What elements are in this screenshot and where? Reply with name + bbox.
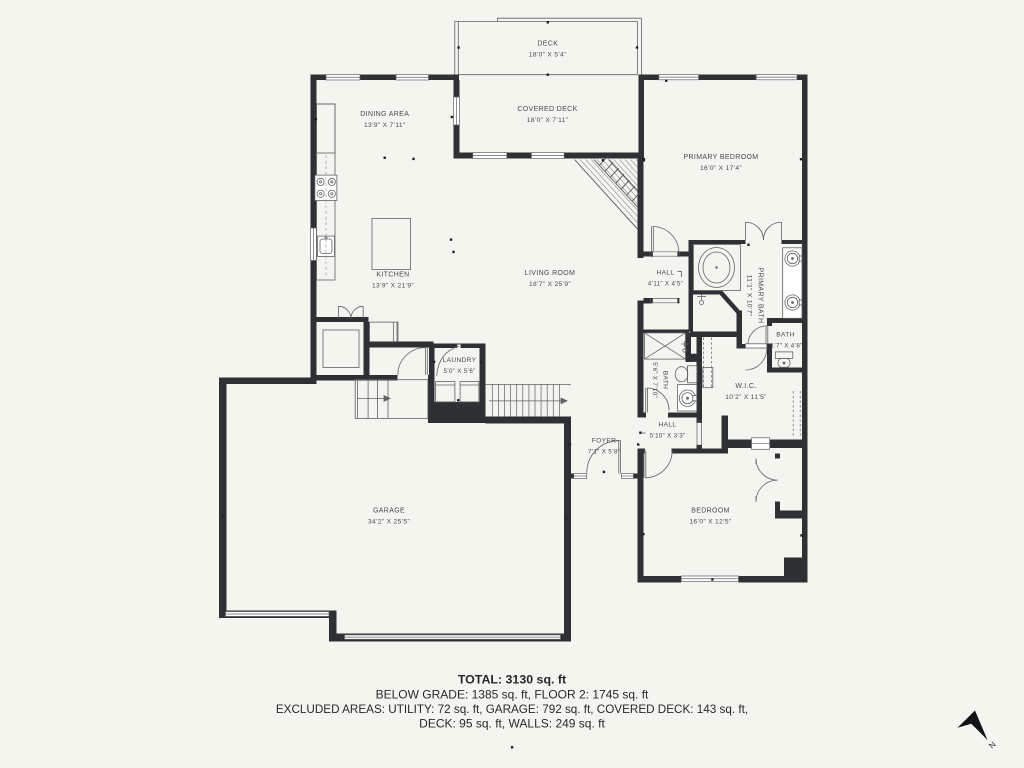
svg-text:HALL: HALL	[657, 270, 675, 277]
svg-text:10’2” X 11’5”: 10’2” X 11’5”	[725, 394, 766, 401]
svg-text:KITCHEN: KITCHEN	[376, 272, 409, 279]
svg-text:HALL: HALL	[659, 422, 677, 429]
svg-text:LIVING ROOM: LIVING ROOM	[525, 270, 576, 277]
svg-text:BELOW GRADE: 1385 sq. ft, FLOO: BELOW GRADE: 1385 sq. ft, FLOOR 2: 1745 …	[376, 688, 649, 702]
svg-text:13’9” X 7’11”: 13’9” X 7’11”	[364, 122, 405, 129]
svg-text:DECK: DECK	[537, 41, 558, 48]
svg-text:TOTAL: 3130 sq. ft: TOTAL: 3130 sq. ft	[458, 673, 566, 687]
svg-text:16’0” X 12’5”: 16’0” X 12’5”	[690, 519, 732, 526]
svg-text:FOYER: FOYER	[592, 438, 616, 445]
svg-text:PRIMARY BATH: PRIMARY BATH	[757, 268, 764, 324]
svg-text:DECK: 95 sq. ft, WALLS: 249 sq: DECK: 95 sq. ft, WALLS: 249 sq. ft	[419, 716, 605, 730]
svg-text:11’1” X 10’7”: 11’1” X 10’7”	[746, 275, 753, 316]
svg-text:W.I.C.: W.I.C.	[735, 383, 756, 390]
svg-text:5’6” X 7’10”: 5’6” X 7’10”	[651, 362, 658, 398]
svg-text:BEDROOM: BEDROOM	[691, 508, 730, 515]
svg-text:BATH: BATH	[776, 332, 795, 339]
svg-text:COVERED DECK: COVERED DECK	[517, 106, 577, 113]
svg-text:18’0” X 7’11”: 18’0” X 7’11”	[527, 117, 568, 124]
svg-text:1’7” X 4’8”: 1’7” X 4’8”	[770, 343, 802, 350]
svg-text:4’11” X 4’5”: 4’11” X 4’5”	[648, 281, 683, 288]
svg-text:DINING AREA: DINING AREA	[360, 111, 409, 118]
svg-text:18’0” X 5’4”: 18’0” X 5’4”	[529, 52, 567, 59]
svg-text:18’7” X 25’9”: 18’7” X 25’9”	[529, 281, 571, 288]
svg-text:EXCLUDED AREAS: UTILITY: 72 sq: EXCLUDED AREAS: UTILITY: 72 sq. ft, GARA…	[276, 703, 748, 716]
svg-text:34’2” X 25’5”: 34’2” X 25’5”	[368, 519, 410, 526]
svg-text:PRIMARY BEDROOM: PRIMARY BEDROOM	[683, 154, 758, 161]
svg-text:5’0” X 5’6”: 5’0” X 5’6”	[443, 368, 475, 375]
svg-text:LAUNDRY: LAUNDRY	[443, 357, 477, 364]
svg-text:GARAGE: GARAGE	[373, 508, 405, 515]
svg-text:16’0” X 17’4”: 16’0” X 17’4”	[700, 165, 742, 172]
svg-text:13’9” X 21’9”: 13’9” X 21’9”	[372, 283, 414, 290]
svg-text:7’1” X 5’8”: 7’1” X 5’8”	[588, 449, 620, 456]
svg-text:5’10” X 3’3”: 5’10” X 3’3”	[650, 433, 686, 440]
svg-text:BATH: BATH	[662, 371, 669, 390]
